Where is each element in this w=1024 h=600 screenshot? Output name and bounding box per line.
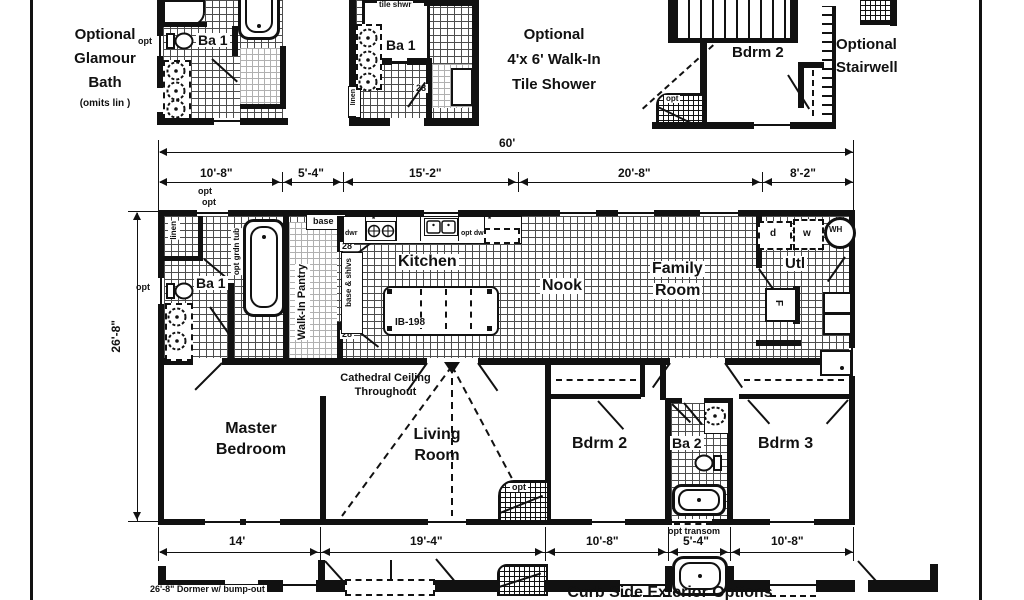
wall bbox=[240, 104, 286, 109]
sink-icon bbox=[166, 306, 188, 328]
door-opening bbox=[390, 118, 424, 126]
wall bbox=[551, 394, 641, 399]
kitchen-sink-icon bbox=[424, 218, 458, 236]
page-border-left bbox=[30, 0, 33, 600]
door-swing bbox=[724, 362, 743, 388]
title-line: Bath bbox=[40, 74, 170, 91]
shower-label: tile shwr bbox=[377, 1, 413, 9]
room-label: Ba 1 bbox=[196, 33, 230, 47]
cut-plan-fragment bbox=[860, 0, 892, 20]
stairwell-dashed bbox=[812, 70, 814, 116]
stair-rail bbox=[822, 6, 836, 124]
dimension-tick bbox=[545, 527, 546, 561]
sink-icon bbox=[165, 60, 187, 82]
island-dashed bbox=[470, 289, 472, 329]
shelf-box bbox=[823, 313, 852, 335]
arrow-icon bbox=[272, 178, 280, 186]
wall bbox=[318, 560, 325, 592]
room-label-ba1: Ba 1 bbox=[194, 276, 228, 290]
wall bbox=[349, 0, 356, 86]
page-border-right bbox=[979, 0, 982, 600]
opt-label: opt bbox=[202, 198, 216, 207]
title-line: Optional bbox=[478, 26, 630, 43]
arrow-icon bbox=[133, 512, 141, 520]
wall bbox=[668, 0, 676, 43]
room-label-master: Master Bedroom bbox=[196, 420, 306, 459]
window bbox=[700, 210, 738, 216]
window bbox=[754, 122, 790, 129]
wall-tick bbox=[390, 560, 392, 580]
overall-depth-dim: 26'-8" bbox=[108, 320, 124, 353]
cathedral-note-1: Cathedral Ceiling bbox=[323, 372, 448, 384]
window bbox=[205, 519, 240, 525]
counter-divider bbox=[396, 217, 397, 241]
dimension-extension bbox=[853, 140, 854, 210]
garden-tub-icon bbox=[238, 0, 280, 40]
segment-dim: 8'-2" bbox=[788, 167, 818, 179]
wall bbox=[665, 398, 671, 519]
opt-label: opt bbox=[138, 37, 152, 46]
drawer-label: dwr bbox=[345, 230, 357, 237]
wall bbox=[756, 340, 801, 346]
toilet-icon bbox=[166, 30, 194, 52]
arrow-icon bbox=[284, 178, 292, 186]
island-corner bbox=[487, 326, 492, 331]
wall bbox=[460, 580, 497, 592]
wall bbox=[868, 580, 930, 592]
island-corner bbox=[387, 289, 392, 294]
stairwell-title: Optional Stairwell bbox=[836, 36, 898, 76]
star-mark: * bbox=[488, 216, 491, 224]
room-label-utl: Utl bbox=[783, 256, 807, 271]
arrow-icon bbox=[322, 548, 330, 556]
room-label-ba2: Ba 2 bbox=[670, 436, 704, 450]
arrow-icon bbox=[845, 548, 853, 556]
door-swing bbox=[324, 560, 343, 581]
dimension-tick bbox=[668, 527, 669, 561]
room-label-master-1: Master bbox=[196, 420, 306, 438]
star-mark: * bbox=[372, 216, 375, 224]
linen-label: linen bbox=[350, 89, 357, 105]
wall bbox=[640, 364, 645, 397]
wall bbox=[930, 564, 938, 592]
arrow-icon bbox=[752, 178, 760, 186]
arrow-icon bbox=[845, 178, 853, 186]
window bbox=[283, 580, 316, 592]
room-label-living-1: Living bbox=[390, 426, 484, 444]
wall bbox=[163, 22, 207, 27]
window bbox=[592, 519, 625, 525]
sink-icon bbox=[703, 405, 727, 427]
door-swing bbox=[435, 558, 455, 581]
door-knob bbox=[840, 366, 844, 370]
segment-dim: 19'-4" bbox=[408, 535, 445, 547]
garden-tub-icon bbox=[243, 219, 285, 317]
door-swing bbox=[747, 399, 770, 424]
closet-rod bbox=[556, 379, 636, 381]
wall bbox=[232, 26, 238, 56]
island-dashed bbox=[445, 289, 447, 329]
arrow-icon bbox=[159, 178, 167, 186]
opt-label: opt bbox=[136, 283, 150, 292]
garden-tub-label: opt grdn tub bbox=[231, 228, 243, 275]
title-note: (omits lin ) bbox=[40, 98, 170, 109]
opt-dishwasher-label: opt dw bbox=[459, 230, 486, 237]
dimension-line bbox=[160, 152, 853, 153]
linen-label: linen bbox=[168, 221, 180, 240]
arrow-icon bbox=[732, 548, 740, 556]
toilet-icon bbox=[166, 280, 194, 302]
island-corner bbox=[487, 289, 492, 294]
wall bbox=[652, 122, 836, 129]
arrow-icon bbox=[520, 178, 528, 186]
dimension-tick bbox=[320, 527, 321, 561]
pantry-label: Walk-In Pantry bbox=[295, 264, 310, 340]
arrow-icon bbox=[345, 178, 353, 186]
tile-shower-title: Optional 4'x 6' Walk-In Tile Shower bbox=[478, 26, 630, 93]
segment-dim: 5'-4" bbox=[681, 535, 711, 547]
door-swing bbox=[194, 362, 222, 390]
room-label-master-2: Bedroom bbox=[196, 441, 306, 459]
arrow-icon bbox=[764, 178, 772, 186]
opt-label: opt bbox=[198, 187, 212, 196]
base-label: base bbox=[313, 217, 334, 226]
room-label-family-2: Room bbox=[653, 283, 702, 299]
room-label: Ba 1 bbox=[384, 38, 418, 52]
water-heater-label: WH bbox=[829, 226, 842, 234]
opt-label: opt bbox=[510, 483, 528, 492]
kitchen-island bbox=[383, 286, 499, 336]
window bbox=[618, 210, 654, 216]
door-swing bbox=[597, 400, 624, 430]
room-label-living: Living Room bbox=[390, 426, 484, 465]
segment-dim: 20'-8" bbox=[616, 167, 653, 179]
window bbox=[770, 519, 814, 525]
sink-icon bbox=[357, 49, 379, 71]
dryer-label: d bbox=[770, 229, 776, 239]
door-swing bbox=[826, 399, 849, 424]
arrow-icon bbox=[508, 178, 516, 186]
room-label: Bdrm 2 bbox=[732, 45, 784, 60]
sink-icon bbox=[165, 98, 187, 120]
room-label-bdrm3: Bdrm 3 bbox=[758, 436, 813, 452]
title-line: Stairwell bbox=[836, 59, 898, 76]
transom-dashed bbox=[674, 523, 712, 525]
opt-window-dashed bbox=[345, 579, 435, 596]
window bbox=[158, 278, 164, 304]
washer-label: w bbox=[803, 229, 811, 239]
counter-divider bbox=[420, 217, 421, 241]
opt-label: opt bbox=[664, 95, 680, 103]
arrow-icon bbox=[845, 148, 853, 156]
closet-rod bbox=[744, 379, 844, 381]
floor-plan-page: Optional Glamour Bath (omits lin ) Ba 1 … bbox=[0, 0, 1024, 600]
furnace-label: F bbox=[773, 300, 783, 306]
bathtub-icon bbox=[672, 484, 726, 516]
wall bbox=[198, 216, 203, 260]
room-label-family-1: Family bbox=[650, 261, 705, 277]
counter-divider bbox=[458, 217, 459, 241]
segment-dim: 15'-2" bbox=[407, 167, 444, 179]
dimension-tick bbox=[730, 527, 731, 561]
sink-icon bbox=[357, 27, 379, 49]
arrow-icon bbox=[720, 548, 728, 556]
dimension-tick bbox=[853, 527, 854, 561]
window bbox=[560, 210, 596, 216]
room-label-bdrm2: Bdrm 2 bbox=[572, 436, 627, 452]
segment-dim: 5'-4" bbox=[296, 167, 326, 179]
cathedral-note-2: Throughout bbox=[323, 386, 448, 398]
title-line: Glamour bbox=[40, 50, 170, 67]
island-model-label: IB-198 bbox=[393, 318, 427, 328]
wall bbox=[790, 0, 798, 43]
arrow-icon bbox=[333, 178, 341, 186]
sink-icon bbox=[357, 71, 379, 93]
wall bbox=[228, 283, 234, 358]
cathedral-note: Cathedral Ceiling Throughout bbox=[323, 372, 448, 398]
dimension-extension bbox=[128, 521, 158, 522]
segment-dim: 10'-8" bbox=[769, 535, 806, 547]
overall-width-dim: 60' bbox=[497, 137, 517, 149]
dimension-line bbox=[160, 182, 853, 183]
title-line: Tile Shower bbox=[478, 76, 630, 93]
wall bbox=[164, 256, 203, 261]
title-line: Optional bbox=[836, 36, 898, 53]
title-line: 4'x 6' Walk-In bbox=[478, 51, 630, 68]
stairs-icon bbox=[676, 0, 790, 43]
fridge-icon bbox=[484, 228, 520, 244]
dimension-line bbox=[137, 213, 138, 521]
wall bbox=[280, 46, 286, 109]
toilet-icon bbox=[694, 452, 722, 474]
window bbox=[157, 36, 163, 56]
arrow-icon bbox=[535, 548, 543, 556]
window bbox=[214, 118, 240, 125]
exterior-door-panel bbox=[820, 350, 852, 376]
dimension-line bbox=[160, 552, 854, 553]
wall bbox=[320, 396, 326, 519]
segment-dim: 10'-8" bbox=[584, 535, 621, 547]
arrow-icon bbox=[159, 548, 167, 556]
arrow-icon bbox=[133, 212, 141, 220]
stove-icon bbox=[366, 221, 396, 241]
arrow-icon bbox=[159, 148, 167, 156]
arrow-icon bbox=[658, 548, 666, 556]
room-label-kitchen: Kitchen bbox=[396, 254, 459, 270]
island-corner bbox=[387, 326, 392, 331]
wall bbox=[739, 394, 849, 399]
wall bbox=[424, 0, 472, 6]
door-panel bbox=[451, 68, 473, 106]
sink-icon bbox=[166, 330, 188, 352]
room-label-nook: Nook bbox=[540, 278, 584, 294]
segment-dim: 10'-8" bbox=[198, 167, 235, 179]
arrow-icon bbox=[670, 548, 678, 556]
optional-closet-area bbox=[240, 48, 280, 104]
base-shelves-label: base & shlvs bbox=[345, 258, 353, 307]
shelf-box bbox=[823, 292, 852, 314]
arrow-icon bbox=[547, 548, 555, 556]
dormer-note: 26'-8" Dormer w/ bump-out bbox=[148, 585, 267, 594]
room-label-living-2: Room bbox=[390, 447, 484, 465]
segment-dim: 14' bbox=[227, 535, 247, 547]
window bbox=[246, 519, 280, 525]
wall bbox=[860, 20, 892, 25]
arrow-icon bbox=[310, 548, 318, 556]
curb-side-title: Curb Side Exterior Options bbox=[540, 584, 800, 600]
